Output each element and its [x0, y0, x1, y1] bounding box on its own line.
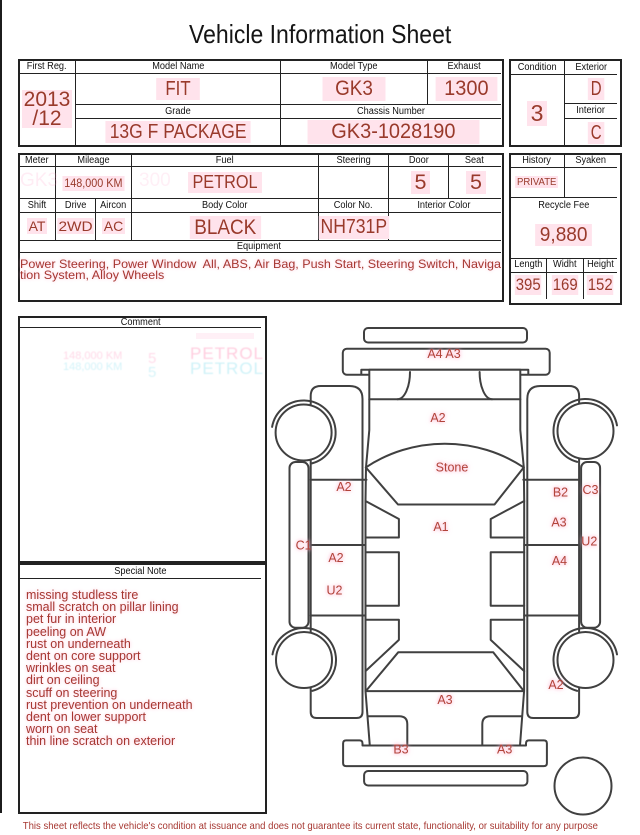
svg-text:U2: U2: [327, 584, 343, 598]
svg-text:A4 A3: A4 A3: [427, 347, 460, 361]
svg-text:A2: A2: [548, 678, 563, 692]
svg-text:B3: B3: [393, 743, 408, 757]
svg-text:A3: A3: [551, 516, 566, 530]
svg-text:A3: A3: [437, 693, 452, 707]
svg-text:A4: A4: [552, 554, 567, 568]
svg-text:C1: C1: [296, 539, 312, 553]
svg-text:A3: A3: [497, 743, 512, 757]
svg-text:A1: A1: [433, 520, 448, 534]
svg-text:A2: A2: [430, 411, 445, 425]
svg-text:A2: A2: [328, 551, 343, 565]
svg-text:B2: B2: [553, 486, 568, 500]
svg-text:A2: A2: [336, 480, 351, 494]
svg-text:Stone: Stone: [436, 461, 469, 475]
svg-text:U2: U2: [581, 534, 597, 548]
svg-text:C3: C3: [583, 483, 599, 497]
